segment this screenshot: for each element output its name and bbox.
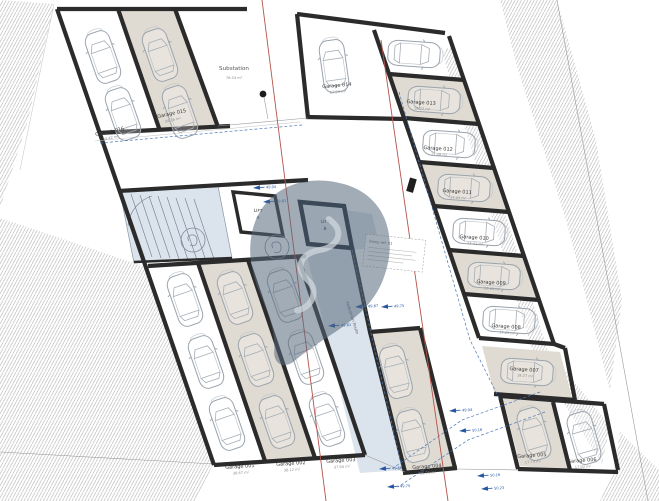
garage-004-area: 35.21 m² [420,470,437,475]
floor-plan-page: Ramp ref: 01 Substation 76.54 m² LIFT A … [0,0,659,501]
level-value: 49.75 [394,304,405,309]
substation-label: Substation [219,66,249,72]
level-value: 49.94 [462,408,473,413]
garage-001-label: Garage 001 [225,463,255,471]
level-value: 49.94 [266,185,277,190]
garage-003-label: Garage 003 [326,457,356,465]
garage-014-area: 17.53 m² [330,89,347,94]
garage-002-label: Garage 002 [276,460,306,468]
garage-001-area: 38.67 m² [233,470,250,475]
level-marker: 49.75 [381,303,405,309]
garage-012-area: 17.48 m² [431,152,448,157]
garage-008-area: 17.41 m² [499,330,516,335]
substation-fixture-line [264,97,268,119]
level-value: 49.68 [392,466,403,471]
substation-area: 76.54 m² [226,76,243,80]
substation-fixture-dot [260,91,267,98]
garage-006-label: Garage 006 [567,457,597,465]
level-value: 50.16 [472,428,483,433]
level-value: 50.23 [494,486,505,491]
level-value: 49.75 [400,484,411,489]
level-value: 49.87 [368,304,379,309]
floor-plan-canvas: Ramp ref: 01 Substation 76.54 m² LIFT A … [0,0,659,501]
level-marker: 50.16 [459,427,483,433]
car-icon [387,37,444,71]
wall-column [406,177,417,192]
hatch-bottom-right [600,432,659,501]
garage-003-area: 37.94 m² [334,464,351,469]
hatch-top-left [0,0,54,208]
car-icon [79,25,125,87]
level-marker: 50.23 [481,485,505,491]
level-marker: 49.94 [449,407,473,413]
garage-014-label: Garage 014 [322,82,352,91]
level-value: 50.16 [490,473,501,478]
level-marker: 50.16 [477,472,501,478]
garage-006-area: 17.92 m² [575,464,592,469]
garage-002-area: 38.12 m² [284,467,301,472]
garage-010-area: 17.41 m² [467,241,484,246]
